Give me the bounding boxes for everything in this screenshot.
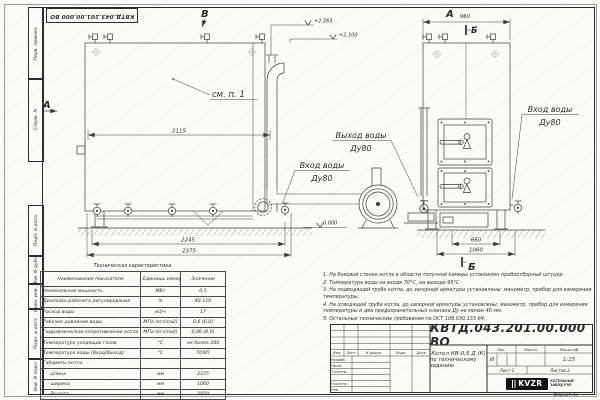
rev-header-podp: Подп. bbox=[390, 349, 412, 357]
outlet-label-line2: Ду80 bbox=[349, 144, 371, 153]
note-1: 1. На боковой стенке котла в области топ… bbox=[323, 272, 592, 279]
spec-row: Рабочее давление водыМПа (кгс/см2)0,6 (6… bbox=[41, 317, 226, 327]
format-note: Формат А3 bbox=[538, 393, 594, 398]
view-label-v: В bbox=[201, 9, 209, 20]
technical-notes: 1. На боковой стенке котла в области топ… bbox=[323, 272, 592, 324]
see-note-label: см. п. 1 bbox=[212, 90, 245, 100]
spec-row: Габариты котла bbox=[41, 359, 226, 369]
spec-row: Расход водым3/ч17 bbox=[41, 307, 226, 317]
scale-value: 1:15 bbox=[545, 353, 593, 366]
spec-table: Наименование показателя Единицы измерени… bbox=[40, 271, 226, 400]
title-block: КВТД.043.201.00.000 ВО Изм. Лист N докум… bbox=[330, 324, 593, 393]
spec-row: Номинальная мощностьМВт0,5 bbox=[41, 287, 226, 297]
lit-header: Лит. bbox=[487, 345, 516, 353]
spec-row: - ширинамм1060 bbox=[41, 379, 226, 389]
rev-header-data: Дата bbox=[412, 349, 430, 357]
spec-row: Температура уходящих газов°Сне более 280 bbox=[41, 338, 226, 348]
dim-1060: 1060 bbox=[469, 248, 483, 254]
scale-header: Масштаб bbox=[545, 345, 593, 353]
spec-header: Наименование показателя bbox=[41, 272, 141, 287]
note-4: 4. На отводящей трубе котла, до запорной… bbox=[323, 302, 592, 315]
dim-2245: 2245 bbox=[181, 238, 195, 244]
doc-number: КВТД.043.201.00.000 ВО bbox=[430, 324, 593, 345]
rev-header-dokum: N докум. bbox=[358, 349, 390, 357]
elevation-marks bbox=[271, 21, 347, 228]
note-5: 5. Остальные технические требования по О… bbox=[323, 316, 592, 323]
outlet-pipe-valve bbox=[404, 108, 438, 223]
spec-row: Температура воды (Вход/Выход)°С70/95 bbox=[41, 348, 226, 358]
spec-row: Гидравлическое сопротивление котлаМПа (к… bbox=[41, 328, 226, 338]
dim-960: 960 bbox=[460, 14, 471, 20]
upper-door bbox=[438, 119, 492, 165]
dim-2375: 2375 bbox=[182, 249, 196, 255]
lit-value: И bbox=[487, 353, 497, 366]
spec-table-title: Техническая характеристика bbox=[40, 263, 225, 269]
elev-0000: 0.000 bbox=[323, 221, 337, 227]
doc-title-line2: по техническому заданию bbox=[430, 358, 487, 368]
outlet-label-line1: Выход воды bbox=[336, 131, 387, 140]
boiler-drawing: В А А Б Б см. п. 1 2115 2245 2375 960 66… bbox=[0, 0, 600, 272]
sheets-total: Листов 2 bbox=[527, 366, 593, 374]
note-3: 3. На подводящей трубе котла, до запорно… bbox=[323, 287, 592, 300]
front-view bbox=[423, 34, 522, 229]
lower-door bbox=[438, 168, 492, 207]
spec-header: Значение bbox=[181, 272, 226, 287]
logo-stripes-icon bbox=[512, 380, 517, 388]
inlet-side-label-line2: Ду80 bbox=[310, 174, 332, 183]
dim-660: 660 bbox=[471, 238, 482, 244]
margin-label: Инв. N подл. bbox=[34, 361, 39, 391]
elev-2265: +2.265 bbox=[314, 19, 333, 25]
margin-label: Подп. и дата bbox=[34, 318, 39, 349]
flue-fan bbox=[358, 168, 398, 228]
view-label-a-top: А bbox=[445, 9, 454, 20]
side-view bbox=[77, 34, 363, 227]
dim-2115: 2115 bbox=[172, 129, 186, 135]
company-logo: KVZR КОТЕЛЬНЫЙ ЗАВОД РЭП bbox=[487, 374, 593, 393]
spec-row: - Высотамм2050 bbox=[41, 389, 226, 399]
inlet-front-label-line1: Вход воды bbox=[528, 105, 573, 114]
mass-header: Масса bbox=[516, 345, 545, 353]
note-2: 2. Температура воды на входе 70°С, на вы… bbox=[323, 280, 592, 287]
elev-2100: +2.100 bbox=[339, 33, 358, 39]
section-label-b-top: Б bbox=[471, 26, 478, 36]
drawing-sheet: Перв. примен. Справ. N Подп. и дата Инв.… bbox=[0, 0, 600, 400]
sheet-number: Лист 1 bbox=[487, 366, 527, 374]
kvzr-logo: KVZR bbox=[506, 378, 548, 390]
spec-row: Диапазон рабочего регулирования%40-110 bbox=[41, 297, 226, 307]
dimensions bbox=[87, 19, 515, 257]
view-label-a-side: А bbox=[42, 100, 51, 111]
section-label-b-bottom: Б bbox=[468, 262, 476, 272]
role-utv: Утв. bbox=[331, 387, 352, 393]
inlet-side-label-line1: Вход воды bbox=[300, 161, 345, 170]
spec-row: - длинамм2375 bbox=[41, 369, 226, 379]
spec-header-row: Наименование показателя Единицы измерени… bbox=[41, 272, 226, 287]
margin-label: Взам. инв. N bbox=[34, 282, 39, 312]
ground-left bbox=[78, 228, 312, 236]
spec-header: Единицы измерения bbox=[141, 272, 181, 287]
logo-text: KVZR bbox=[518, 379, 542, 388]
inlet-front-label-line2: Ду80 bbox=[538, 118, 560, 127]
logo-caption: КОТЕЛЬНЫЙ ЗАВОД РЭП bbox=[550, 380, 573, 388]
